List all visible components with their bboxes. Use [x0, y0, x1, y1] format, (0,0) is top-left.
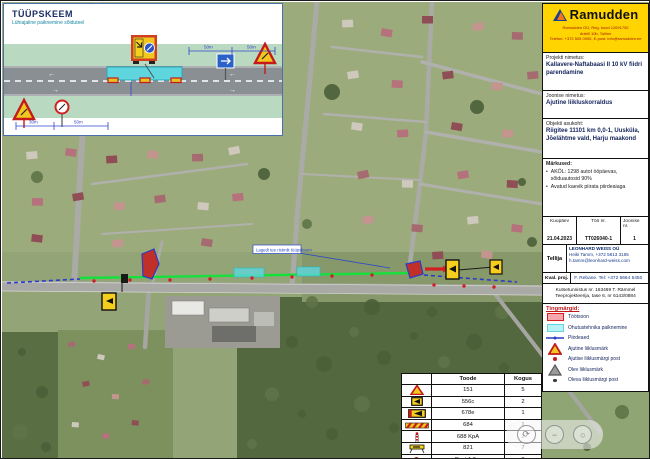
products-header-toode: Toode: [432, 374, 505, 384]
table-row: Post 1,5m 9: [402, 454, 541, 459]
delineator-post-lamp-icon: [413, 432, 421, 442]
title-block-panel: Ramudden Ramudden OÜ, Reg. kood 12091792…: [542, 3, 649, 392]
notes-box: Märkused: •AKÖL: 1298 autot ööpäevas, sõ…: [542, 159, 649, 217]
viewer-controls: ⟳ − ○: [506, 420, 603, 449]
temporary-sign-icon: [548, 343, 562, 355]
svg-text:→: →: [229, 87, 236, 94]
map-sign-west: [102, 293, 116, 310]
meta-value: 1: [633, 236, 636, 242]
temporary-sign-post-icon: [553, 357, 557, 361]
designer-box: Kval. proj. F. Rebane. Tel: +372 5664 54…: [542, 273, 649, 284]
drawing-label: Joonise nimetus:: [546, 93, 645, 99]
legend-box: Tingmärgid: Töötsoon Ohutustehnika paikn…: [542, 304, 649, 392]
arrow-panel-large-icon: [408, 409, 426, 418]
brand-name: Ramudden: [570, 7, 639, 22]
location-label: Objekti asukoht:: [546, 121, 645, 127]
drawing-sheet: Lagedi tee ristmik tüüpskeem TÜÜPSKEEM L…: [0, 0, 650, 459]
project-name-box: Projekti nimetus: Kallavere-Naftabaasi I…: [542, 53, 649, 91]
site-location-box: Objekti asukoht: Riigitee 11101 km 0,0-1…: [542, 119, 649, 159]
meta-value: 21.04.2023: [547, 236, 572, 242]
map-callout-label: Lagedi tee ristmik tüüpskeem: [256, 247, 312, 252]
meta-value: TT026040-1: [585, 236, 612, 242]
legend-item: Töötsoon: [546, 312, 645, 323]
meta-header: Töö nr.: [591, 219, 606, 224]
drawing-value: Ajutine liikluskorraldus: [546, 100, 645, 108]
existing-sign-icon: [548, 364, 562, 376]
notes-label: Märkused:: [546, 161, 645, 167]
barrier-stand-icon: [408, 444, 426, 453]
work-zone-swatch-icon: [547, 313, 564, 321]
meta-table: Kuupäev21.04.2023 Töö nr.TT026040-1 Joon…: [542, 217, 649, 245]
designer-value: F. Rebane. Tel: +372 5664 5450: [574, 276, 642, 281]
svg-text:→: →: [52, 87, 59, 94]
note-item: •Avatud kaevik piirata piirdeaiaga: [546, 184, 645, 191]
map-sign-east-2: [490, 260, 502, 274]
safety-equipment-swatch-icon: [547, 324, 564, 332]
brand-box: Ramudden Ramudden OÜ, Reg. kood 12091792…: [542, 3, 649, 53]
refresh-icon[interactable]: ⟳: [517, 425, 536, 444]
certificate-box: Kutsetunnistus nr. 163469 T. Rämmel Teep…: [542, 284, 649, 304]
ramudden-logo-icon: [553, 9, 567, 21]
note-item: •AKÖL: 1298 autot ööpäevas, sõiduautosid…: [546, 169, 645, 182]
products-header-row: Toode Kogus: [402, 374, 541, 384]
warning-triangle-sign-icon: [410, 385, 424, 395]
legend-item: Ohutustehnika paiknemine: [546, 323, 645, 334]
drawing-name-box: Joonise nimetus: Ajutine liikluskorraldu…: [542, 91, 649, 119]
meta-header: Kuupäev: [550, 219, 569, 224]
zoom-out-icon[interactable]: −: [545, 425, 564, 444]
legend-item: Olev liiklusmärk: [546, 365, 645, 376]
client-email: h.tamm@leonhard-weiss.com: [569, 258, 646, 264]
safety-zone-2: [297, 267, 320, 276]
industrial-area: [165, 296, 280, 348]
svg-text:←: ←: [48, 71, 55, 78]
circle-control-icon[interactable]: ○: [573, 425, 592, 444]
existing-sign-post-icon: [553, 379, 557, 383]
dim-label-bottom-2: 50m: [74, 120, 83, 125]
location-value: Riigitee 11101 km 0,0-1, Uusküla, Jõeläh…: [546, 128, 645, 143]
striped-barrier-board-icon: [405, 422, 429, 429]
client-box: Tellija LEONHARD WEISS OÜ Heiki Tamm, +3…: [542, 245, 649, 273]
table-row: 678e 1: [402, 407, 541, 419]
safety-zone-1: [234, 268, 264, 277]
certificate-line: Teeprojekteerija, tase 6, nr 6143/0884: [546, 294, 645, 300]
meta-header: Joonise nr.: [623, 219, 646, 229]
table-row: 556c 2: [402, 396, 541, 408]
map-sign-east-1: [446, 260, 459, 279]
table-row: 151 5: [402, 384, 541, 396]
dim-label-top-2: 50m: [247, 45, 256, 50]
inset-title: TÜÜPSKEEM: [12, 9, 73, 19]
typical-scheme-inset: TÜÜPSKEEM Lühiajaline paiknemine sõidute…: [3, 3, 283, 136]
inset-diagram: ←← →→ →: [4, 30, 282, 134]
brand-address-line: Telefon: +372 505 0000, E-post: info@ram…: [545, 36, 646, 42]
arrow-panel-small-icon: [411, 397, 423, 406]
fence-line-icon: [546, 335, 564, 341]
products-header-kogus: Kogus: [505, 374, 541, 384]
project-value: Kallavere-Naftabaasi II 10 kV fiidri par…: [546, 62, 645, 77]
dim-label-top-1: 50m: [204, 45, 213, 50]
legend-item: Ajutine liiklusmärk: [546, 344, 645, 355]
project-label: Projekti nimetus:: [546, 55, 645, 61]
designer-label: Kval. proj.: [545, 273, 571, 284]
dim-label-bottom-1: 30m: [29, 120, 38, 125]
svg-text:←: ←: [229, 71, 236, 78]
inset-subtitle: Lühiajaline paiknemine sõiduteel: [12, 20, 84, 26]
legend-item: Oleva liiklusmärgi post: [546, 375, 645, 386]
client-label: Tellija: [543, 245, 567, 272]
